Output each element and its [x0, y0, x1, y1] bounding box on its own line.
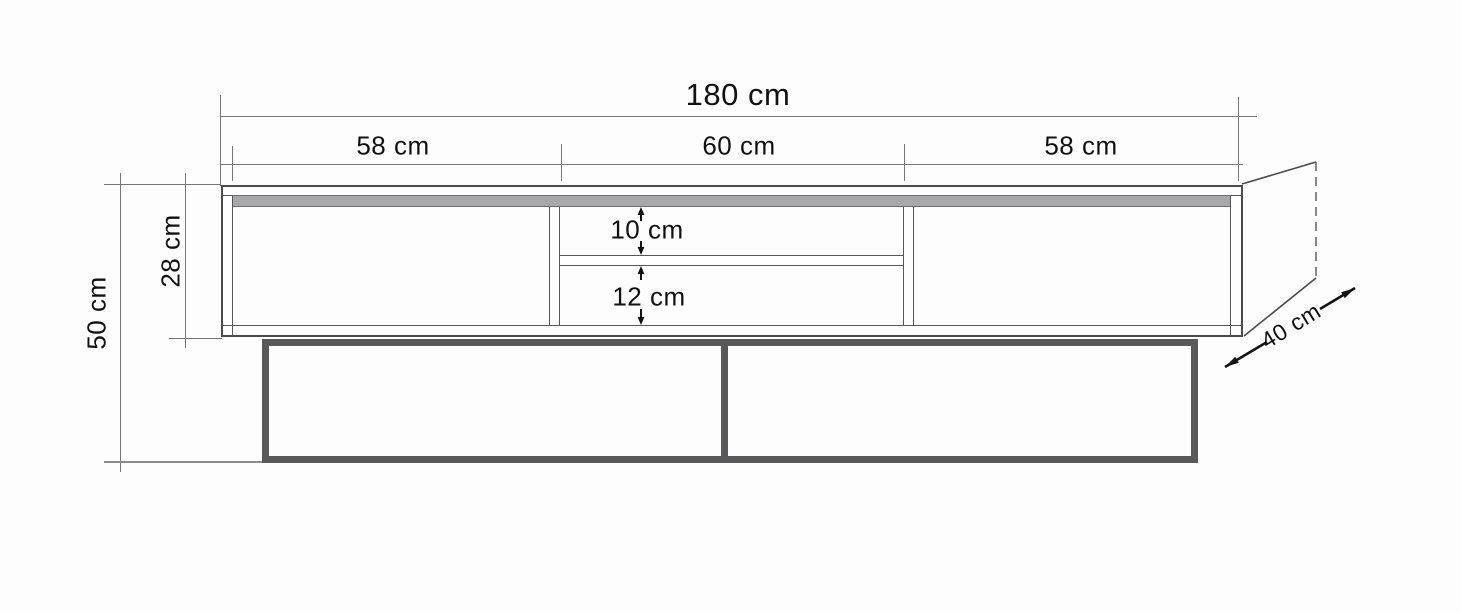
dim-line-sections [220, 164, 1243, 165]
base-frame [262, 339, 1198, 463]
dim-line-overall-height [120, 173, 121, 472]
dim-tick-divider-right [904, 144, 905, 181]
floor-line [104, 461, 263, 463]
divider-left-edge-a [549, 207, 550, 325]
divider-right-edge-a [903, 207, 904, 325]
dim-line-total-width [220, 116, 1257, 117]
dim-label-niche-upper: 10 cm [610, 215, 683, 246]
divider-right-edge-b [913, 207, 914, 325]
dim-tick-divider-left [561, 144, 562, 181]
furniture-dimension-diagram: 180 cm 58 cm 60 cm 58 cm 50 cm 28 cm 10 … [0, 0, 1461, 613]
dim-ext-left [220, 95, 221, 186]
cabinet-right-panel-inner-edge [1230, 196, 1231, 336]
divider-left-edge-b [559, 207, 560, 325]
dim-label-section-right: 58 cm [1044, 131, 1117, 162]
dim-ext-right [1238, 97, 1239, 181]
perspective-top-edge [1242, 162, 1316, 184]
cabinet-left-panel-inner-edge [232, 196, 233, 336]
dim-label-total-width: 180 cm [686, 77, 791, 113]
dim-label-overall-height: 50 cm [82, 276, 113, 349]
base-frame-divider [721, 339, 728, 463]
dim-label-section-middle: 60 cm [702, 131, 775, 162]
cabinet-shelf [560, 255, 903, 266]
dim-label-niche-lower: 12 cm [612, 282, 685, 313]
cabinet-top-strip [232, 195, 1231, 207]
dim-tick-cabinet-top [104, 184, 221, 185]
dim-tick-inner-left [232, 146, 233, 181]
cabinet-bottom-panel-edge [222, 325, 1242, 326]
dim-label-cabinet-height: 28 cm [156, 214, 187, 287]
dim-label-depth: 40 cm [1256, 297, 1326, 354]
dim-tick-cabinet-bottom [169, 338, 222, 339]
dim-label-section-left: 58 cm [356, 131, 429, 162]
